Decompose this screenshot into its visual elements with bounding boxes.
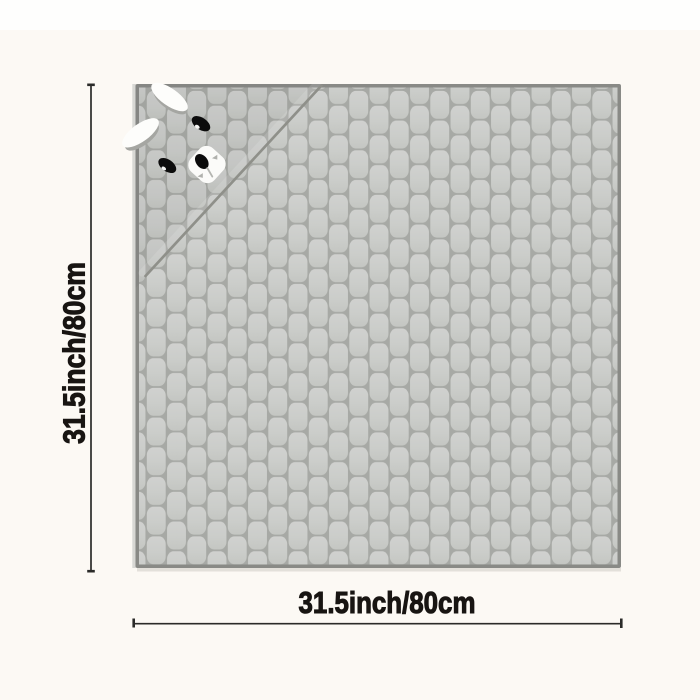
svg-text:31.5inch/80cm: 31.5inch/80cm <box>58 262 92 444</box>
svg-text:31.5inch/80cm: 31.5inch/80cm <box>299 586 476 621</box>
